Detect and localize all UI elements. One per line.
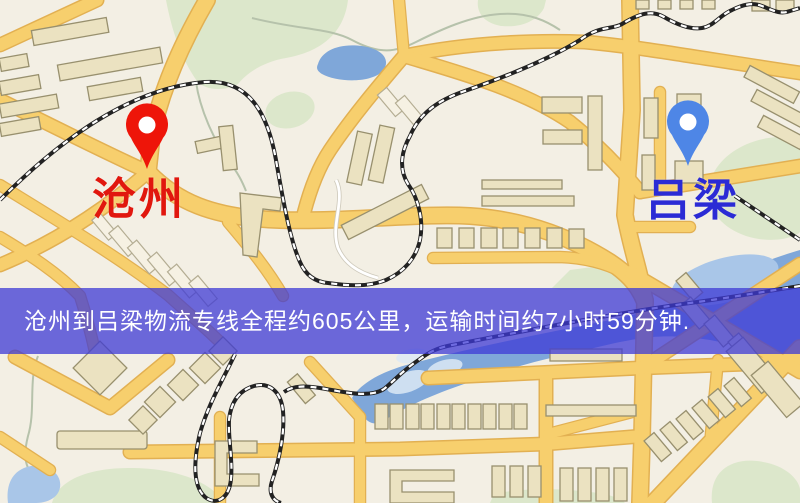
destination-pin-hole [680, 114, 697, 131]
origin-city-label[interactable]: 沧州 [92, 178, 186, 222]
map-canvas [0, 0, 800, 503]
route-info-banner: 沧州到吕梁物流专线全程约605公里，运输时间约7小时59分钟. [0, 288, 800, 354]
destination-city-label[interactable]: 吕梁 [646, 179, 740, 223]
origin-pin-hole [139, 117, 156, 134]
map-screenshot: 沧州 吕梁 沧州到吕梁物流专线全程约605公里，运输时间约7小时59分钟. [0, 0, 800, 503]
route-info-text: 沧州到吕梁物流专线全程约605公里，运输时间约7小时59分钟. [24, 308, 690, 334]
